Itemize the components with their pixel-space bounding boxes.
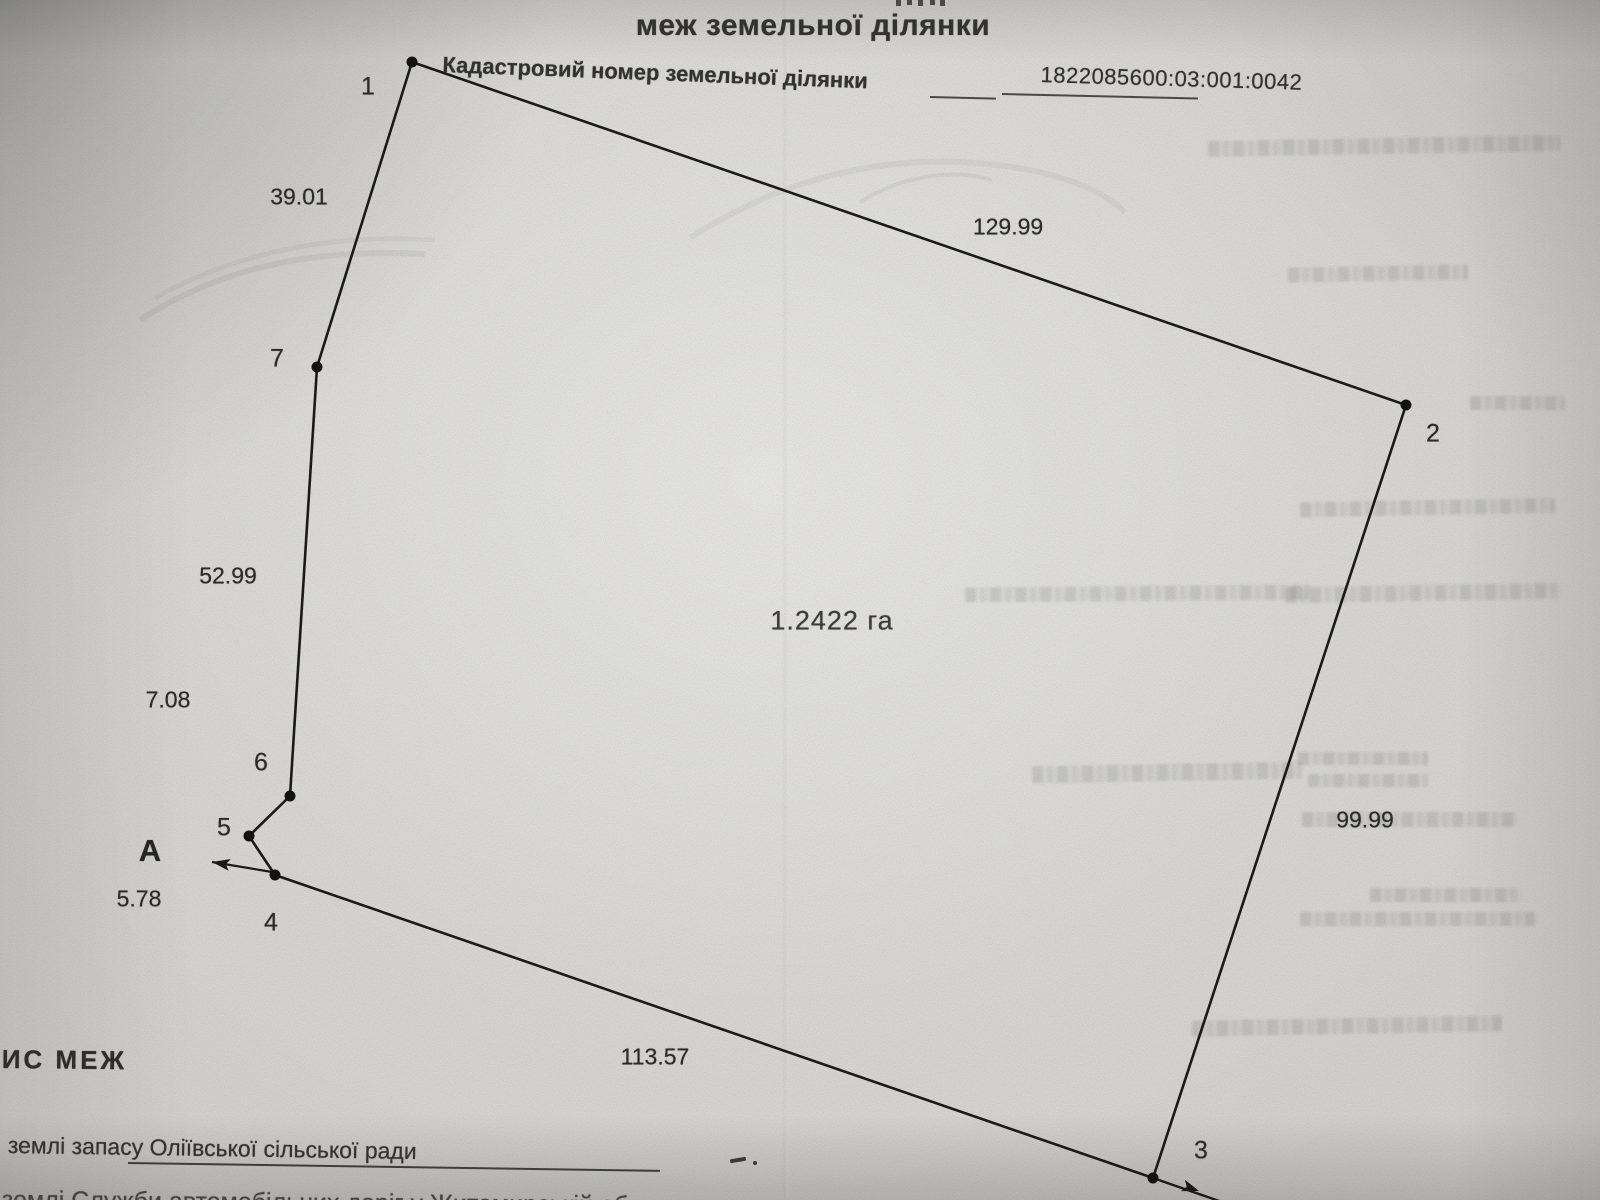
adjacency-direction-letter: А: [139, 833, 161, 869]
side-length-2-1: 129.99: [973, 214, 1043, 241]
vertex-label-3: 3: [1194, 1137, 1208, 1166]
clipped-bottom-line: землі Служби автомобільних доріг у Житом…: [2, 1186, 629, 1200]
ink-speck: [753, 1161, 757, 1165]
vertex-label-2: 2: [1426, 420, 1440, 449]
text-overlay: меж земельної ділянки Кадастровий номер …: [0, 0, 1600, 1200]
vertex-label-1: 1: [361, 73, 375, 102]
side-length-3-2: 99.99: [1336, 807, 1394, 834]
side-length-4-3: 113.57: [621, 1044, 690, 1071]
vertex-label-7: 7: [270, 345, 284, 374]
side-length-5-4: 5.78: [117, 886, 162, 913]
vertex-label-6: 6: [254, 749, 268, 778]
page-title: меж земельної ділянки: [636, 9, 991, 43]
ink-speck: [730, 1157, 746, 1164]
side-length-1-7: 39.01: [270, 184, 328, 211]
cadastral-number-value: 1822085600:03:001:0042: [1040, 62, 1302, 96]
parcel-area-label: 1.2422 га: [770, 606, 893, 637]
vertex-label-4: 4: [264, 909, 278, 938]
cadastral-underline: [1002, 93, 1198, 99]
side-length-6-5: 7.08: [146, 687, 191, 714]
boundaries-description-heading: ИС МЕЖ: [2, 1044, 128, 1076]
adjacent-lands-line: землі запасу Оліївської сільської ради: [8, 1132, 417, 1165]
cadastral-number-label: Кадастровий номер земельної ділянки: [442, 52, 868, 94]
cadastral-underline: [930, 96, 996, 100]
scanned-cadastral-plan-page: меж земельної ділянки Кадастровий номер …: [0, 0, 1600, 1200]
vertex-label-5: 5: [217, 814, 231, 843]
side-length-7-6: 52.99: [199, 563, 257, 590]
